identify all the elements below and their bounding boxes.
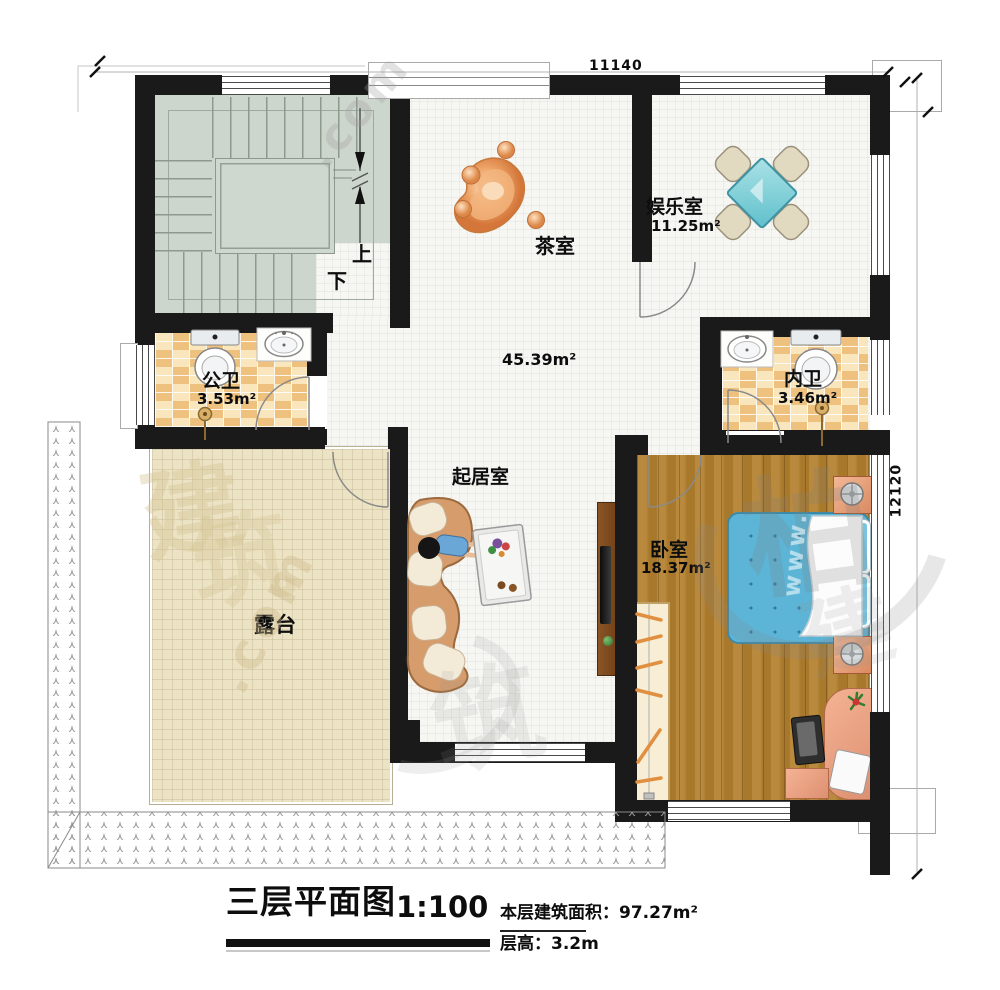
room-label-terrace: 露台: [254, 614, 296, 637]
room-label-bedroom: 卧室: [650, 540, 688, 561]
door-opening: [307, 376, 327, 429]
plan-title: 三层平面图: [226, 884, 396, 920]
room-label-entertainment: 娱乐室: [646, 197, 703, 218]
wall: [615, 435, 637, 800]
window: [680, 76, 825, 95]
floor-area-text: 本层建筑面积：97.27m²: [500, 904, 698, 923]
title-underline-thin: [226, 950, 490, 952]
room-area-bedroom: 18.37m²: [641, 560, 711, 577]
floor-height-text: 层高：3.2m: [500, 935, 599, 954]
window: [871, 455, 890, 712]
window-line: [369, 77, 549, 78]
exterior-gap: [390, 763, 637, 802]
wall: [390, 720, 420, 763]
wall: [390, 75, 410, 328]
plan-scale: 1:100: [396, 892, 488, 924]
wall: [700, 435, 890, 455]
wall: [135, 75, 155, 345]
room-label-private-bath: 内卫: [784, 369, 822, 390]
room-label-tea: 茶室: [535, 235, 575, 257]
wardrobe: [632, 602, 670, 804]
wall: [870, 75, 890, 155]
stair-treads-top: [212, 97, 360, 158]
dimension-top: 11140: [589, 59, 643, 74]
room-area-public-bath: 3.53m²: [197, 391, 256, 408]
tv: [600, 546, 611, 624]
stair-landing: [215, 158, 335, 254]
nightstand: [833, 636, 873, 674]
window: [871, 155, 890, 275]
bed-pillow: [838, 520, 870, 574]
wall: [135, 427, 325, 449]
wall: [388, 427, 408, 449]
room-label-living: 起居室: [452, 467, 509, 488]
window-bay-tea: [368, 62, 550, 99]
wall: [135, 313, 333, 333]
title-divider: [500, 930, 586, 932]
wall: [390, 449, 408, 763]
stair-treads-bottom: [183, 252, 307, 316]
hall-area: 45.39m²: [502, 351, 576, 369]
room-area-entertainment: 11.25m²: [651, 218, 721, 235]
nightstand: [833, 476, 873, 514]
wall: [632, 75, 652, 262]
window-line: [369, 85, 549, 86]
bed-pillow: [838, 574, 870, 628]
stair-down-label: 下: [327, 270, 347, 292]
wall: [700, 317, 890, 337]
wall: [548, 75, 680, 95]
wall: [870, 712, 890, 875]
stair-up-label: 上: [352, 243, 372, 265]
wall: [330, 75, 368, 95]
computer-monitor: [791, 715, 826, 766]
desk-return: [785, 768, 829, 799]
window: [871, 340, 890, 415]
window: [455, 743, 585, 762]
plant-icon: [603, 636, 613, 646]
window: [222, 76, 330, 95]
room-label-public-bath: 公卫: [202, 371, 240, 392]
stair-treads-left: [152, 160, 212, 252]
dimension-right: 12120: [889, 456, 904, 526]
title-underline-thick: [226, 939, 490, 947]
room-area-private-bath: 3.46m²: [778, 390, 837, 407]
window: [668, 801, 790, 821]
floor-plan: 娱乐室 11.25m² 茶室 45.39m² 起居室 公卫 3.53m² 内卫 …: [0, 0, 1000, 990]
window: [136, 345, 155, 425]
